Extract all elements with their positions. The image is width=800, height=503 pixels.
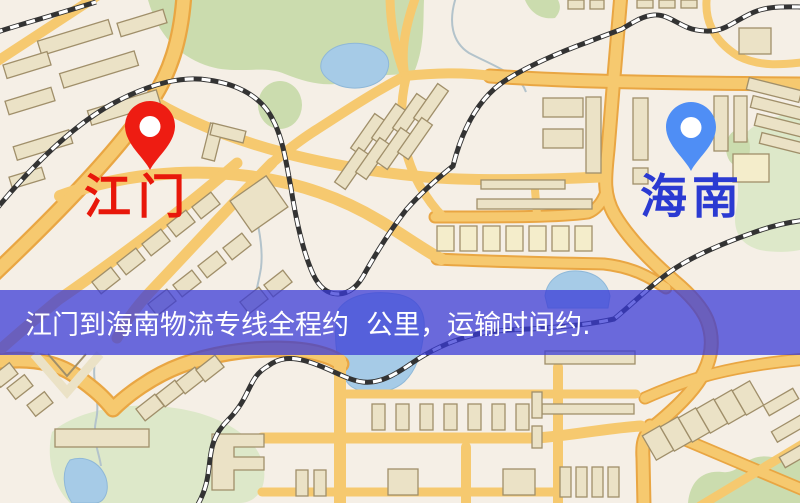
map-view[interactable]: 江门 海南 江门到海南物流专线全程约 公里，运输时间约. <box>0 0 800 503</box>
route-info-text: 江门到海南物流专线全程约 公里，运输时间约. <box>0 303 591 342</box>
station-building <box>437 226 592 251</box>
destination-pin-icon[interactable] <box>666 102 716 171</box>
origin-pin-icon[interactable] <box>125 101 175 170</box>
destination-label: 海南 <box>640 174 744 221</box>
map-graphics <box>0 0 800 503</box>
origin-label: 江门 <box>84 174 192 221</box>
pond-north <box>321 43 389 88</box>
route-info-banner: 江门到海南物流专线全程约 公里，运输时间约. <box>0 290 800 355</box>
